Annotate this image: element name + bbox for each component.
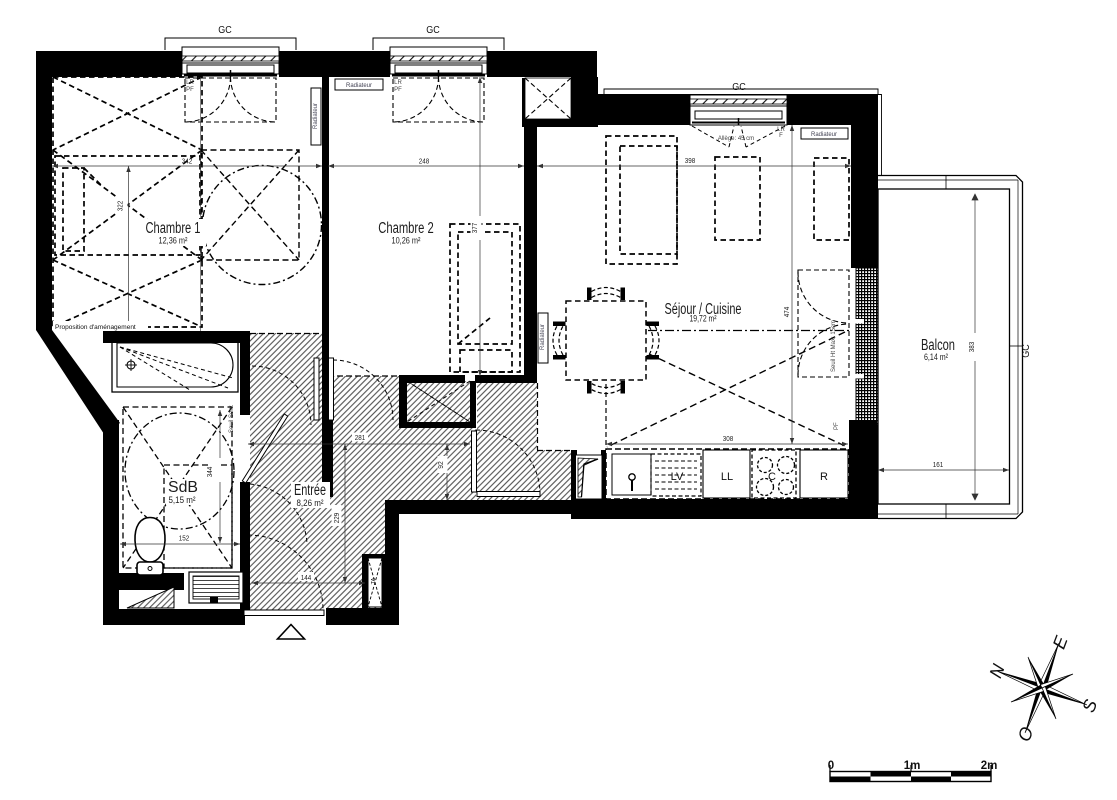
svg-text:342: 342 [182,157,193,166]
svg-text:92: 92 [436,461,445,469]
svg-text:19,72 m²: 19,72 m² [690,314,717,325]
svg-text:308: 308 [723,434,734,443]
svg-text:5,15 m²: 5,15 m² [169,495,196,506]
svg-text:Seuil Ht Max: 15cm: Seuil Ht Max: 15cm [831,320,837,372]
svg-text:LV: LV [671,471,684,483]
svg-text:GC: GC [426,24,440,36]
svg-text:N: N [985,660,1009,680]
svg-text:Radiateur: Radiateur [811,132,837,138]
svg-text:8,26 m²: 8,26 m² [297,498,324,509]
svg-text:Radiateur: Radiateur [540,324,546,350]
svg-text:F: F [779,133,783,139]
svg-text:PF: PF [834,422,840,430]
svg-text:12,36 m²: 12,36 m² [159,236,188,247]
svg-text:LR: LR [186,80,194,86]
svg-text:10,26 m²: 10,26 m² [392,236,421,247]
svg-text:474: 474 [782,307,791,318]
svg-text:281: 281 [355,433,366,442]
svg-text:322: 322 [116,201,125,212]
svg-text:C: C [768,471,776,483]
svg-text:144: 144 [301,573,312,582]
svg-text:S: S [1078,697,1101,715]
svg-text:LL: LL [721,471,733,483]
svg-text:Allège: 45 cm: Allège: 45 cm [718,136,754,142]
svg-text:377: 377 [470,223,479,234]
svg-text:6,14 m²: 6,14 m² [924,352,948,363]
svg-text:Seuil Serv.: Seuil Serv. [229,404,235,433]
svg-text:Radiateur: Radiateur [313,103,319,129]
svg-text:0: 0 [828,760,834,772]
svg-text:SdB: SdB [168,479,198,496]
svg-text:Proposition d'aménagement: Proposition d'aménagement [55,324,136,331]
svg-text:344: 344 [205,467,214,478]
svg-text:Chambre 2: Chambre 2 [378,220,434,237]
svg-text:Chambre 1: Chambre 1 [146,220,201,237]
svg-text:GC: GC [732,81,746,93]
svg-text:248: 248 [419,157,430,166]
svg-text:161: 161 [933,460,944,469]
svg-text:GC: GC [218,24,232,36]
svg-text:TA: TA [371,577,377,584]
svg-text:PF: PF [394,87,402,93]
svg-text:LR: LR [394,80,402,86]
svg-text:383: 383 [967,342,976,353]
svg-text:E: E [1049,632,1072,651]
svg-text:O: O [1014,724,1038,744]
svg-text:398: 398 [685,156,696,165]
svg-text:Entrée: Entrée [294,482,326,499]
svg-text:R: R [820,471,828,483]
svg-text:229: 229 [332,513,341,524]
svg-text:PF: PF [186,87,194,93]
svg-text:Radiateur: Radiateur [346,83,372,89]
svg-text:1m: 1m [904,760,921,772]
svg-text:2m: 2m [981,760,998,772]
svg-text:152: 152 [179,534,190,543]
svg-text:GC: GC [1020,344,1032,358]
